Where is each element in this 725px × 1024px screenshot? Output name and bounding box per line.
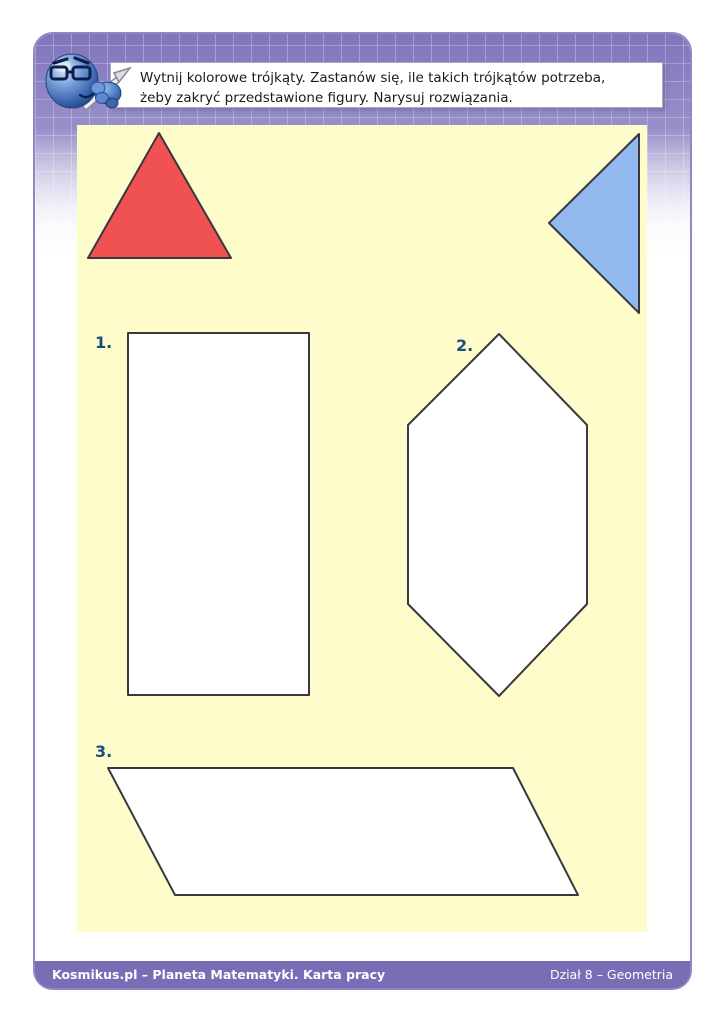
footer-chapter-text: Dział 8 – Geometria: [550, 967, 673, 982]
figure-1-label: 1.: [95, 333, 112, 352]
figure-2-label: 2.: [456, 336, 473, 355]
footer-brand-text: Kosmikus.pl – Planeta Matematyki. Karta …: [52, 967, 385, 982]
instruction-line-2: żeby zakryć przedstawione figury. Narysu…: [140, 88, 656, 108]
instruction-box: Wytnij kolorowe trójkąty. Zastanów się, …: [110, 62, 663, 108]
instruction-line-1: Wytnij kolorowe trójkąty. Zastanów się, …: [140, 68, 656, 88]
mascot-hand: [91, 82, 121, 108]
page-frame: Kosmikus.pl – Planeta Matematyki. Karta …: [33, 32, 692, 990]
figure-3-label: 3.: [95, 742, 112, 761]
kosmikus-mascot-icon: [34, 42, 140, 124]
worksheet-panel: [77, 125, 647, 932]
worksheet-page: Kosmikus.pl – Planeta Matematyki. Karta …: [0, 0, 725, 1024]
footer-bar: Kosmikus.pl – Planeta Matematyki. Karta …: [35, 961, 690, 988]
